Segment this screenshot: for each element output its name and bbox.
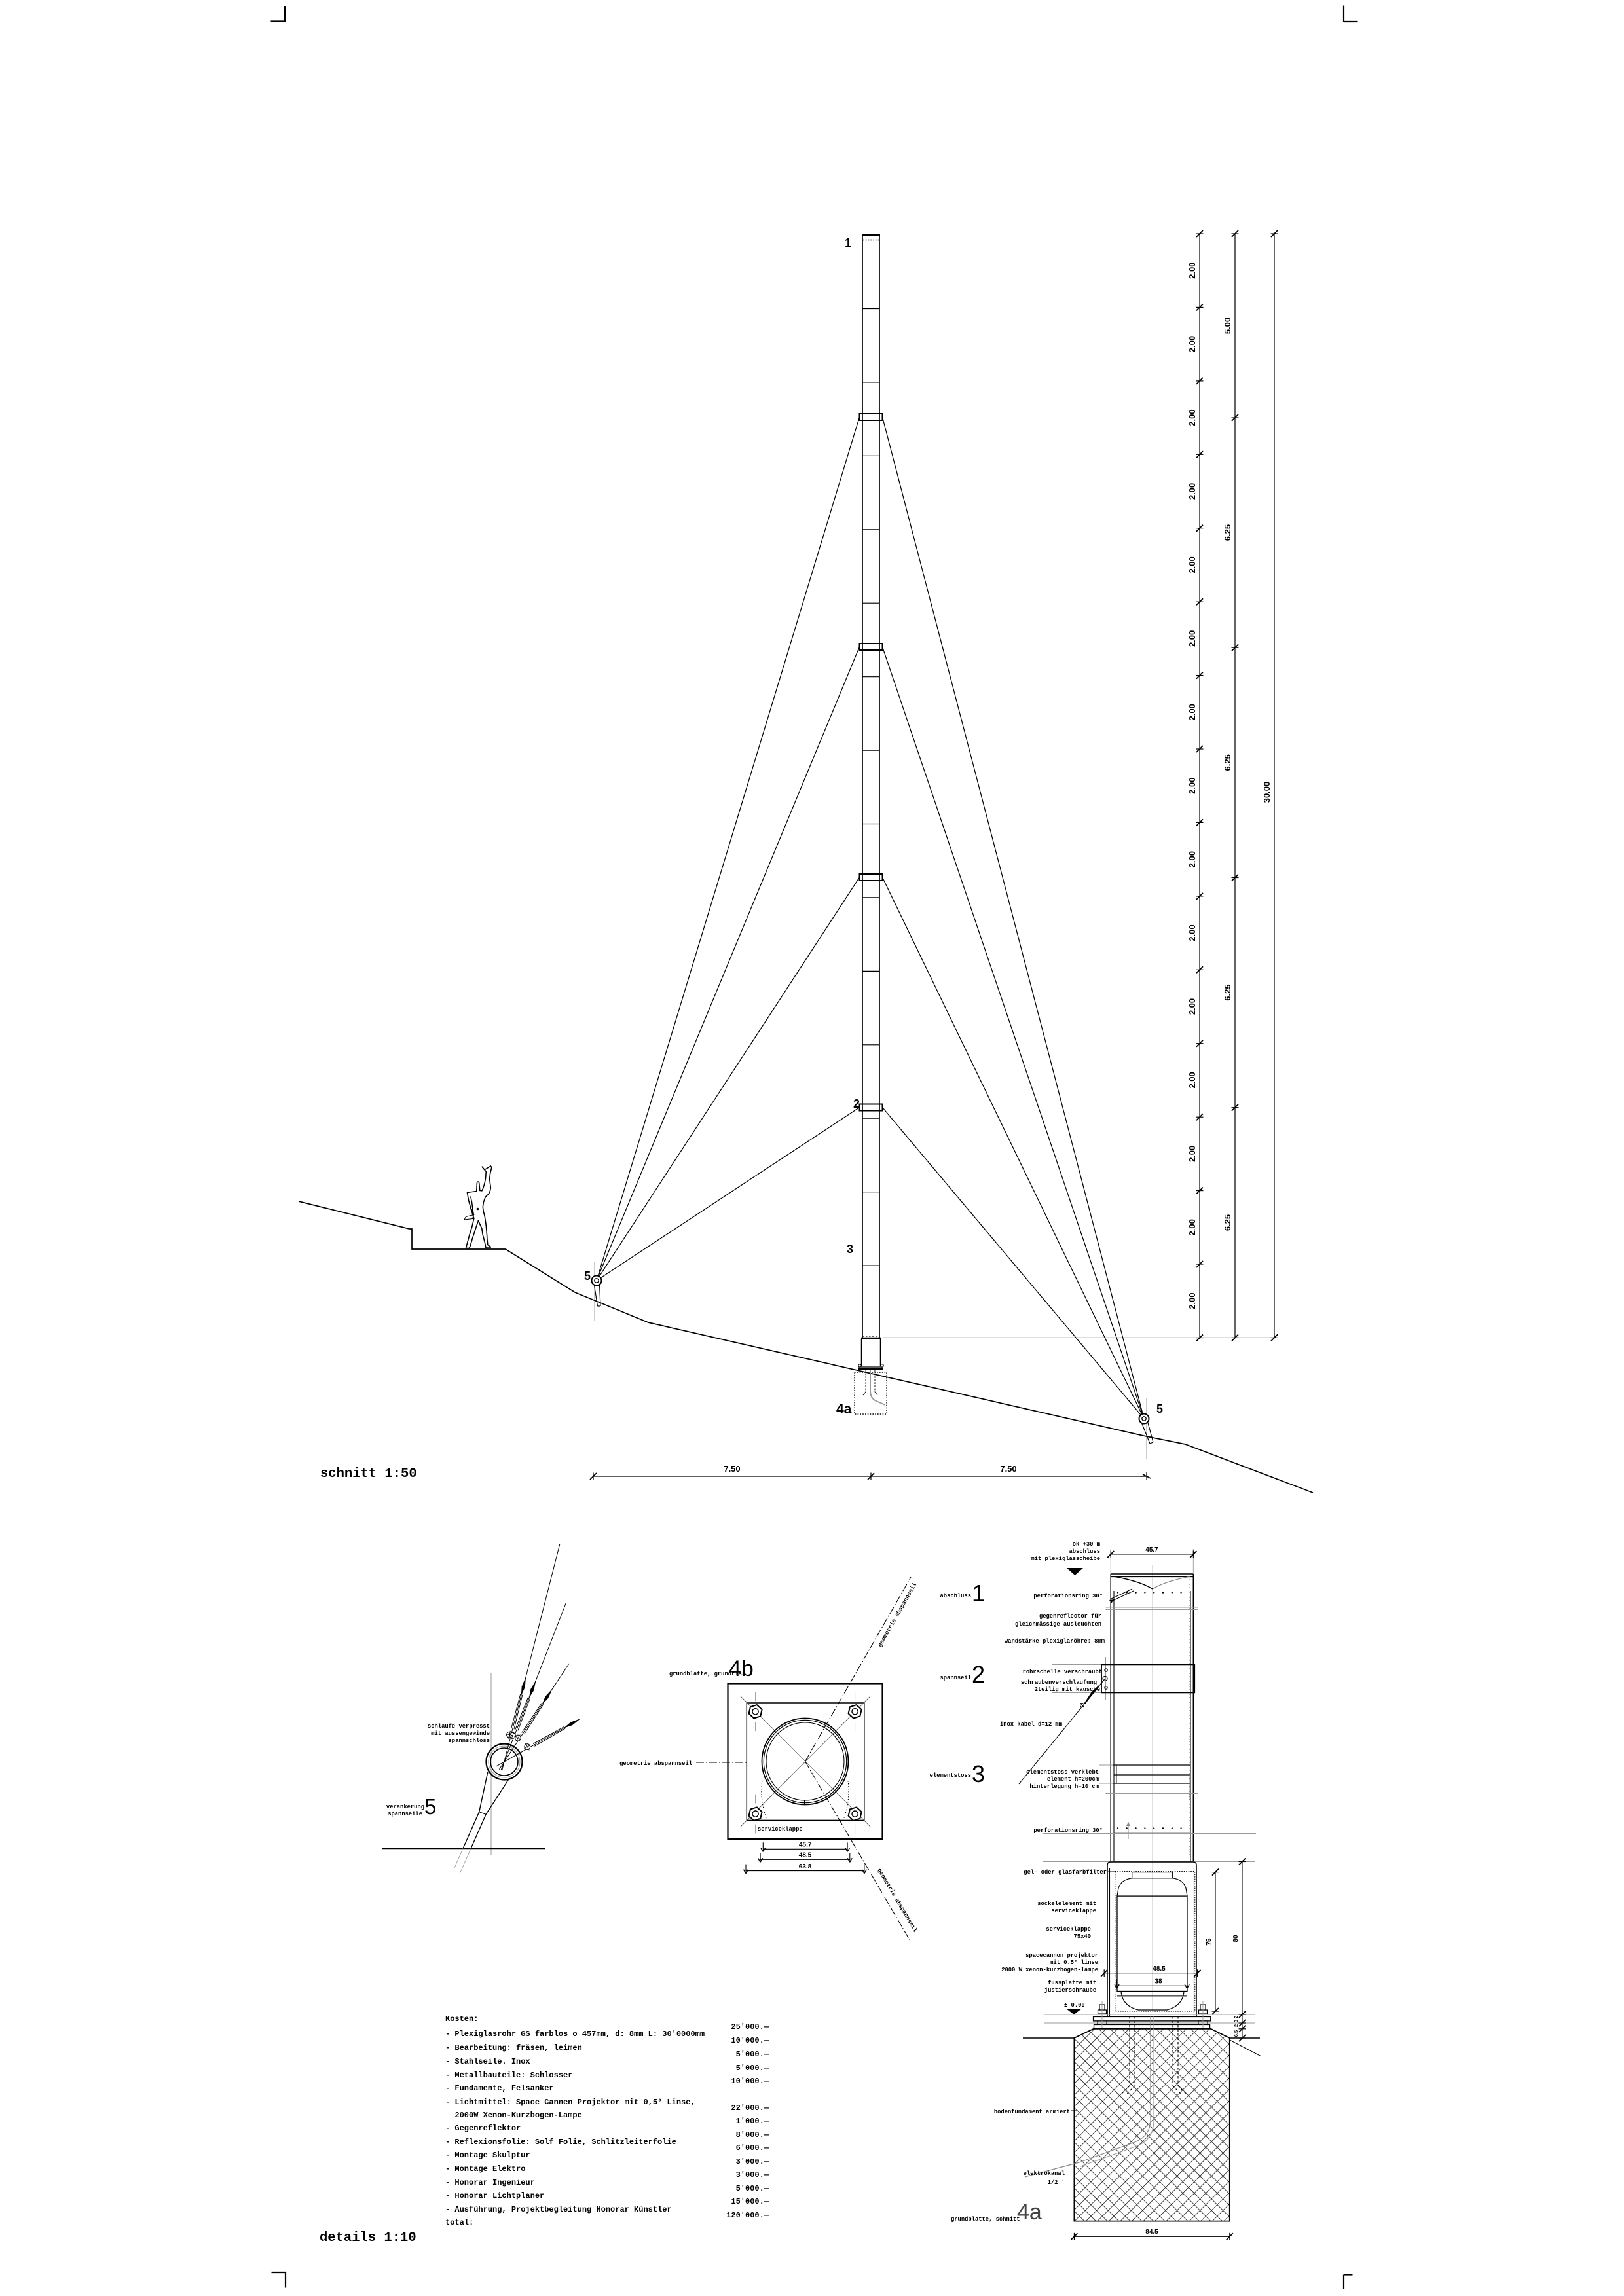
svg-text:5: 5 (1156, 1402, 1163, 1415)
svg-text:3'000.—: 3'000.— (736, 2170, 769, 2179)
svg-text:mit 0.5° linse: mit 0.5° linse (1050, 1959, 1098, 1966)
svg-text:2.00: 2.00 (1187, 924, 1197, 941)
svg-text:4a: 4a (836, 1402, 852, 1417)
svg-text:gegenreflector für: gegenreflector für (1039, 1613, 1101, 1620)
svg-text:serviceklappe: serviceklappe (1046, 1926, 1091, 1933)
svg-text:45.7: 45.7 (1145, 1546, 1158, 1554)
svg-text:5.00: 5.00 (1223, 318, 1232, 334)
svg-text:80: 80 (1232, 1935, 1240, 1942)
svg-text:mit plexiglasscheibe: mit plexiglasscheibe (1031, 1556, 1100, 1562)
svg-text:6.5: 6.5 (1233, 2030, 1239, 2037)
svg-text:2.00: 2.00 (1187, 1072, 1197, 1088)
svg-text:5'000.—: 5'000.— (736, 2184, 769, 2193)
svg-text:4a: 4a (1017, 2200, 1042, 2225)
svg-text:2: 2 (1233, 2016, 1239, 2018)
svg-text:3'000.—: 3'000.— (736, 2157, 769, 2166)
svg-text:serviceklappe: serviceklappe (758, 1826, 803, 1832)
svg-text:- Stahlseile. Inox: - Stahlseile. Inox (445, 2057, 530, 2066)
svg-text:120'000.—: 120'000.— (726, 2211, 769, 2220)
svg-text:spannschloss: spannschloss (449, 1738, 490, 1744)
svg-text:25'000.—: 25'000.— (731, 2022, 769, 2032)
svg-text:1/2 ': 1/2 ' (1048, 2179, 1065, 2186)
svg-text:abschluss: abschluss (1069, 1548, 1100, 1555)
svg-text:2.00: 2.00 (1187, 483, 1197, 500)
svg-text:5'000.—: 5'000.— (736, 2064, 769, 2073)
svg-text:75x40: 75x40 (1074, 1933, 1091, 1940)
svg-text:2: 2 (972, 1661, 985, 1688)
svg-text:justierschraube: justierschraube (1044, 1987, 1096, 1994)
svg-text:rohrschelle verschraubt: rohrschelle verschraubt (1023, 1669, 1102, 1675)
svg-text:2.00: 2.00 (1187, 409, 1197, 426)
svg-text:2.00: 2.00 (1187, 630, 1197, 647)
svg-text:2.00: 2.00 (1187, 851, 1197, 867)
svg-text:15'000.—: 15'000.— (731, 2197, 769, 2206)
svg-text:total:: total: (445, 2218, 473, 2227)
svg-text:5: 5 (584, 1269, 591, 1283)
svg-text:grundblatte, schnitt: grundblatte, schnitt (951, 2216, 1020, 2223)
svg-text:- Honorar Lichtplaner: - Honorar Lichtplaner (445, 2191, 544, 2200)
svg-text:2.00: 2.00 (1187, 998, 1197, 1015)
svg-text:mit aussengewinde: mit aussengewinde (431, 1730, 490, 1737)
svg-text:8'000.—: 8'000.— (736, 2130, 769, 2140)
svg-text:wandstärke plexiglaröhre: 8mm: wandstärke plexiglaröhre: 8mm (1005, 1638, 1105, 1645)
svg-text:elementstoss verklebt: elementstoss verklebt (1026, 1769, 1099, 1776)
svg-text:6.25: 6.25 (1223, 524, 1232, 541)
svg-text:perforationsring 30°: perforationsring 30° (1033, 1827, 1103, 1834)
svg-text:2.00: 2.00 (1187, 704, 1197, 720)
svg-text:6'000.—: 6'000.— (736, 2143, 769, 2153)
svg-text:38: 38 (1154, 1978, 1162, 1986)
svg-text:geometrie abspannseil: geometrie abspannseil (619, 1760, 692, 1767)
svg-text:3: 3 (1233, 2020, 1239, 2022)
svg-text:2.00: 2.00 (1187, 1146, 1197, 1162)
svg-text:element h=200cm: element h=200cm (1047, 1776, 1099, 1783)
svg-text:- Ausführung, Projektbegleitun: - Ausführung, Projektbegleitung Honorar … (445, 2205, 672, 2214)
svg-text:- Lichtmittel: Space Cannen Pr: - Lichtmittel: Space Cannen Projektor mi… (445, 2098, 695, 2107)
svg-text:1: 1 (972, 1580, 985, 1607)
svg-text:fussplatte mit: fussplatte mit (1048, 1980, 1096, 1986)
svg-text:- Fundamente, Felsanker: - Fundamente, Felsanker (445, 2084, 554, 2093)
svg-text:± 0.00: ± 0.00 (1064, 2002, 1085, 2009)
svg-text:elementstoss: elementstoss (930, 1772, 971, 1779)
svg-text:2.00: 2.00 (1187, 556, 1197, 573)
svg-text:spannseile: spannseile (388, 1811, 422, 1817)
svg-text:verankerung: verankerung (386, 1804, 424, 1810)
svg-text:6.25: 6.25 (1223, 1214, 1232, 1231)
svg-text:6.25: 6.25 (1223, 984, 1232, 1000)
svg-text:6.25: 6.25 (1223, 754, 1232, 771)
svg-text:75: 75 (1206, 1938, 1213, 1946)
svg-text:ok +30 m: ok +30 m (1073, 1541, 1100, 1548)
svg-text:perforationsring 30°: perforationsring 30° (1033, 1593, 1103, 1599)
svg-text:63.8: 63.8 (799, 1863, 812, 1870)
svg-text:1'000.—: 1'000.— (736, 2117, 769, 2126)
svg-text:abschluss: abschluss (940, 1593, 971, 1599)
svg-text:schnitt 1:50: schnitt 1:50 (320, 1467, 417, 1482)
svg-text:- Montage Skulptur: - Montage Skulptur (445, 2151, 530, 2160)
svg-text:- Gegenreflektor: - Gegenreflektor (445, 2124, 521, 2133)
svg-text:2.00: 2.00 (1187, 778, 1197, 794)
svg-text:gel- oder glasfarbfilter: gel- oder glasfarbfilter (1024, 1869, 1107, 1876)
svg-text:1: 1 (845, 236, 851, 249)
svg-text:3: 3 (847, 1243, 853, 1256)
svg-text:5'000.—: 5'000.— (736, 2050, 769, 2059)
svg-text:48.5: 48.5 (1153, 1965, 1166, 1973)
svg-text:bodenfundament armiert: bodenfundament armiert (994, 2109, 1070, 2115)
svg-text:10'000.—: 10'000.— (731, 2077, 769, 2086)
svg-text:sockelelement mit: sockelelement mit (1037, 1901, 1096, 1907)
svg-text:hinterlegung h=10 cm: hinterlegung h=10 cm (1029, 1783, 1099, 1790)
svg-text:- Honorar Ingenieur: - Honorar Ingenieur (445, 2178, 535, 2187)
svg-text:45.7: 45.7 (799, 1842, 812, 1849)
svg-text:10'000.—: 10'000.— (731, 2036, 769, 2045)
svg-text:schraubenverschlaufung: schraubenverschlaufung (1021, 1679, 1097, 1686)
svg-text:gleichmässige ausleuchten: gleichmässige ausleuchten (1015, 1621, 1101, 1628)
svg-text:2: 2 (853, 1097, 860, 1110)
svg-text:84.5: 84.5 (1145, 2229, 1158, 2236)
svg-text:- Metallbauteile: Schlosser: - Metallbauteile: Schlosser (445, 2071, 572, 2080)
svg-text:- Bearbeitung: fräsen, leimen: - Bearbeitung: fräsen, leimen (445, 2043, 582, 2052)
svg-text:2.00: 2.00 (1187, 263, 1197, 279)
svg-text:5: 5 (424, 1795, 436, 1819)
svg-text:3: 3 (972, 1760, 985, 1787)
svg-text:30.00: 30.00 (1262, 782, 1272, 803)
svg-text:details 1:10: details 1:10 (320, 2231, 416, 2246)
svg-text:Kosten:: Kosten: (445, 2014, 478, 2024)
svg-text:7.50: 7.50 (1000, 1464, 1016, 1474)
svg-text:2.00: 2.00 (1187, 336, 1197, 352)
svg-text:spannseil: spannseil (940, 1675, 971, 1681)
svg-text:- Reflexionsfolie: Solf Folie,: - Reflexionsfolie: Solf Folie, Schlitzle… (445, 2138, 676, 2147)
svg-text:2.00: 2.00 (1187, 1219, 1197, 1235)
svg-text:4b: 4b (729, 1656, 754, 1681)
svg-text:2teilig mit kausche: 2teilig mit kausche (1035, 1686, 1100, 1693)
svg-text:serviceklappe: serviceklappe (1051, 1908, 1096, 1914)
svg-text:22'000.—: 22'000.— (731, 2104, 769, 2113)
svg-text:spacecannon projektor: spacecannon projektor (1025, 1952, 1098, 1959)
svg-text:- Plexiglasrohr GS farblos o 4: - Plexiglasrohr GS farblos o 457mm, d: 8… (445, 2030, 705, 2039)
svg-text:2.00: 2.00 (1187, 1293, 1197, 1309)
svg-text:7.50: 7.50 (724, 1464, 740, 1474)
svg-text:2: 2 (1233, 2024, 1239, 2027)
svg-text:2000W Xenon-Kurzbogen-Lampe: 2000W Xenon-Kurzbogen-Lampe (445, 2111, 582, 2120)
svg-text:- Montage Elektro: - Montage Elektro (445, 2164, 525, 2174)
svg-text:schlaufe verpresst: schlaufe verpresst (428, 1723, 490, 1730)
svg-text:48.5: 48.5 (799, 1852, 812, 1859)
svg-text:2000 W xenon-kurzbogen-lampe: 2000 W xenon-kurzbogen-lampe (1001, 1967, 1098, 1973)
svg-text:elektrokanal: elektrokanal (1024, 2170, 1065, 2177)
svg-text:inox kabel d=12 mm: inox kabel d=12 mm (1000, 1721, 1062, 1728)
